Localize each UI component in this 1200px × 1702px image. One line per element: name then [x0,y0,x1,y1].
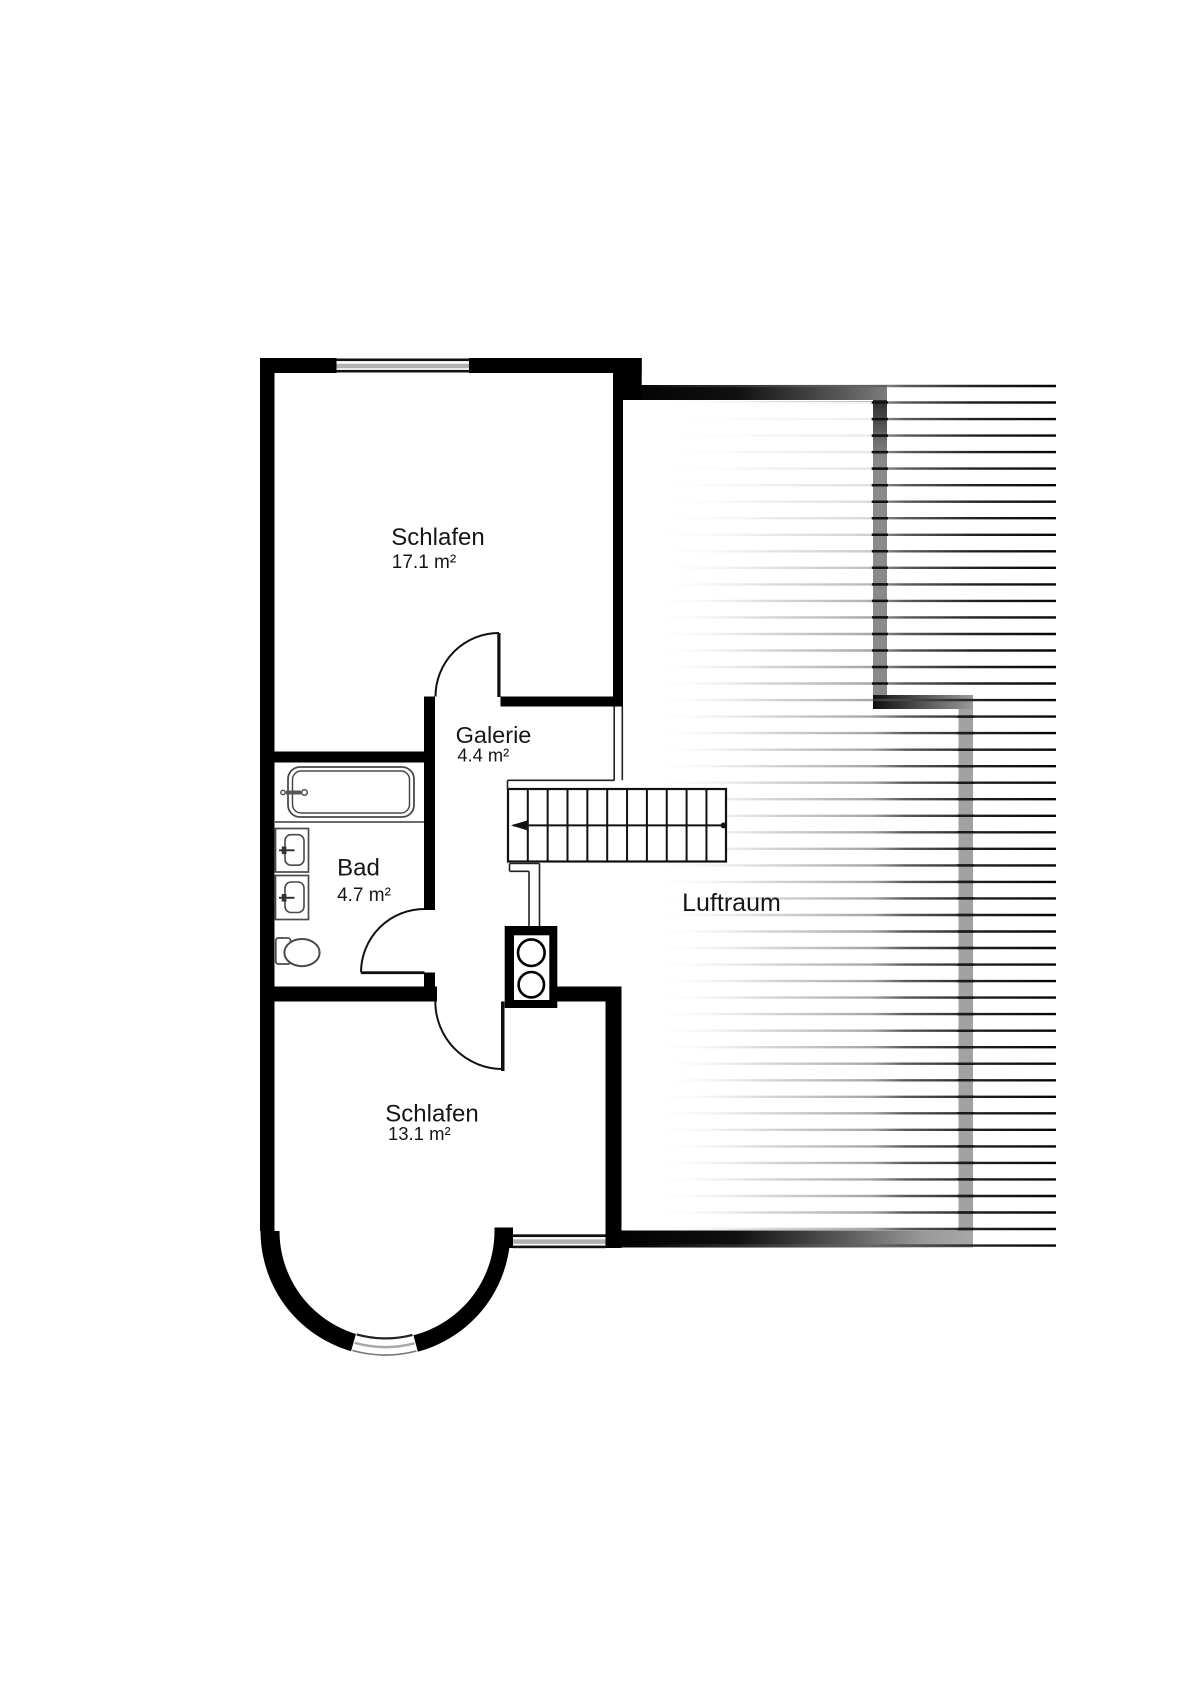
svg-text:13.1 m²: 13.1 m² [388,1123,451,1144]
svg-text:Schlafen: Schlafen [391,524,484,551]
svg-text:4.4 m²: 4.4 m² [457,745,509,766]
svg-text:17.1 m²: 17.1 m² [392,552,456,573]
svg-text:Luftraum: Luftraum [682,889,781,917]
svg-text:Bad: Bad [337,855,380,882]
svg-text:4.7 m²: 4.7 m² [337,885,391,906]
